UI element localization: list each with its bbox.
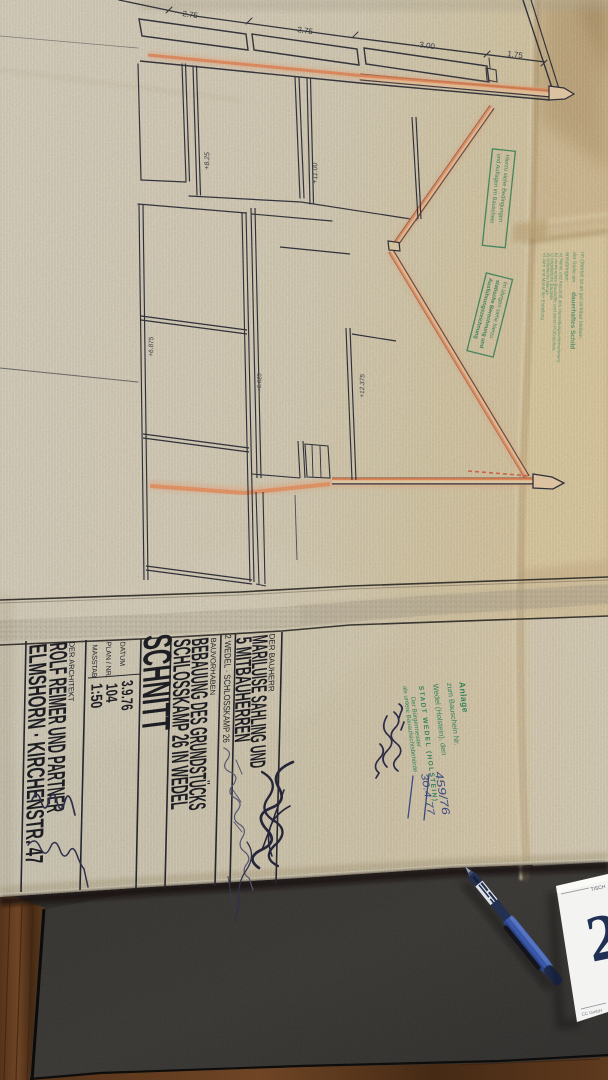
svg-text:+6.875: +6.875 xyxy=(148,336,155,357)
svg-text:2 WEDEL · SCHLOSSKAMP 26: 2 WEDEL · SCHLOSSKAMP 26 xyxy=(221,634,233,743)
svg-text:PLAN / NR.: PLAN / NR. xyxy=(104,641,112,678)
svg-text:dauerhaftes Schild: dauerhaftes Schild xyxy=(569,292,577,349)
svg-text:+8.25: +8.25 xyxy=(204,151,211,170)
svg-text:+12.375: +12.375 xyxy=(359,373,366,398)
svg-text:1:50: 1:50 xyxy=(87,682,105,709)
svg-text:5 MITBAUHERREN: 5 MITBAUHERREN xyxy=(230,636,257,744)
svg-text:MASSTAB: MASSTAB xyxy=(90,644,98,678)
svg-text:DATUM: DATUM xyxy=(118,641,125,666)
svg-text:+6.625: +6.625 xyxy=(257,372,263,392)
svg-text:+11.00: +11.00 xyxy=(312,162,319,184)
svg-text:SCHNITT: SCHNITT xyxy=(133,632,180,735)
svg-text:ELMSHORN · KIRCHENSTR. 47: ELMSHORN · KIRCHENSTR. 47 xyxy=(20,642,52,865)
svg-text:der Stelle ein: der Stelle ein xyxy=(570,252,577,283)
